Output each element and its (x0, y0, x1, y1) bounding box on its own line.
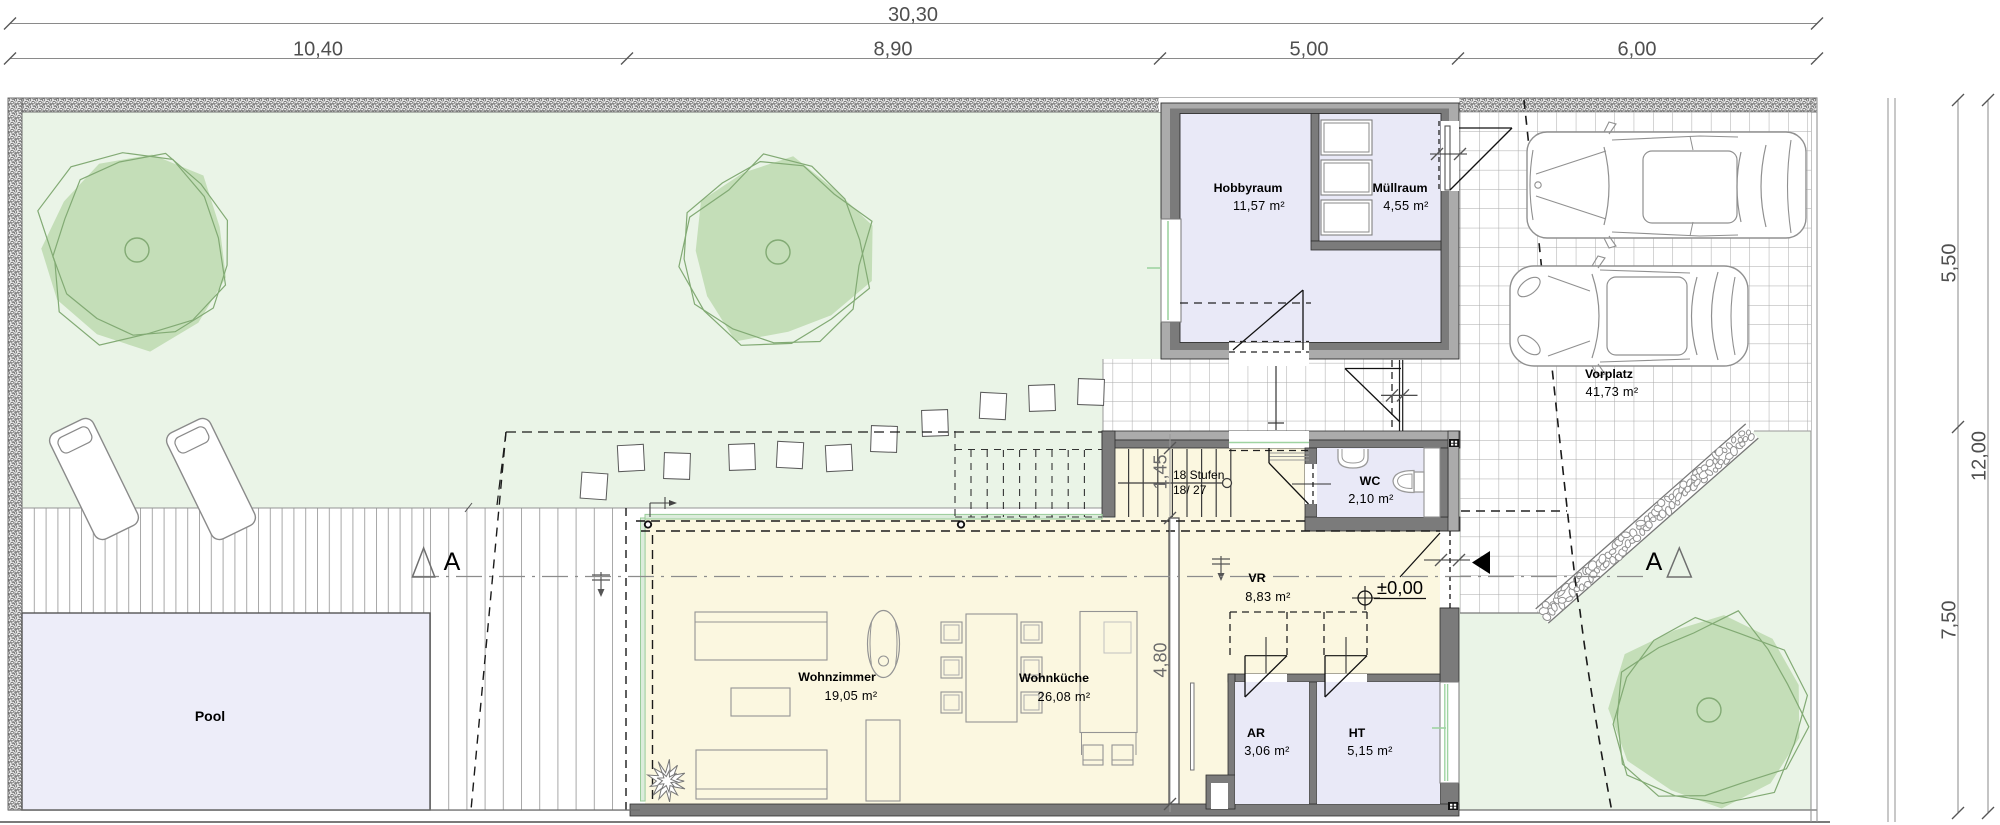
svg-text:±0,00: ±0,00 (1377, 577, 1423, 598)
svg-text:6,00: 6,00 (1618, 39, 1657, 61)
svg-text:Wohnküche: Wohnküche (1019, 671, 1089, 685)
svg-text:A: A (1646, 548, 1663, 576)
svg-text:Hobbyraum: Hobbyraum (1214, 181, 1283, 195)
svg-text:2,10 m²: 2,10 m² (1348, 491, 1394, 506)
svg-text:8,90: 8,90 (874, 39, 913, 61)
svg-text:19,05 m²: 19,05 m² (825, 688, 878, 703)
svg-text:11,57 m²: 11,57 m² (1233, 198, 1285, 213)
svg-text:41,73 m²: 41,73 m² (1586, 384, 1639, 399)
svg-text:26,08 m²: 26,08 m² (1038, 689, 1091, 704)
svg-text:30,30: 30,30 (888, 4, 938, 26)
svg-text:1,45: 1,45 (1151, 454, 1171, 489)
svg-text:5,00: 5,00 (1290, 39, 1329, 61)
svg-text:Wohnzimmer: Wohnzimmer (798, 670, 876, 684)
svg-text:HT: HT (1349, 726, 1366, 740)
svg-text:10,40: 10,40 (293, 39, 343, 61)
svg-text:Vorplatz: Vorplatz (1585, 367, 1633, 381)
svg-text:8,83 m²: 8,83 m² (1245, 589, 1291, 604)
svg-text:3,06 m²: 3,06 m² (1244, 743, 1290, 758)
svg-text:18 Stufen: 18 Stufen (1173, 468, 1224, 482)
svg-text:5,15 m²: 5,15 m² (1347, 743, 1393, 758)
svg-text:VR: VR (1248, 571, 1265, 585)
svg-text:AR: AR (1247, 726, 1265, 740)
svg-text:Pool: Pool (195, 708, 225, 724)
svg-text:4,80: 4,80 (1151, 642, 1171, 677)
svg-text:18/ 27: 18/ 27 (1173, 483, 1207, 497)
svg-text:12,00: 12,00 (1969, 431, 1991, 481)
svg-text:7,50: 7,50 (1939, 601, 1961, 640)
svg-text:WC: WC (1360, 474, 1381, 488)
svg-text:5,50: 5,50 (1939, 244, 1961, 283)
svg-text:4,55 m²: 4,55 m² (1383, 198, 1429, 213)
svg-text:Müllraum: Müllraum (1372, 181, 1427, 195)
svg-text:A: A (444, 548, 461, 576)
